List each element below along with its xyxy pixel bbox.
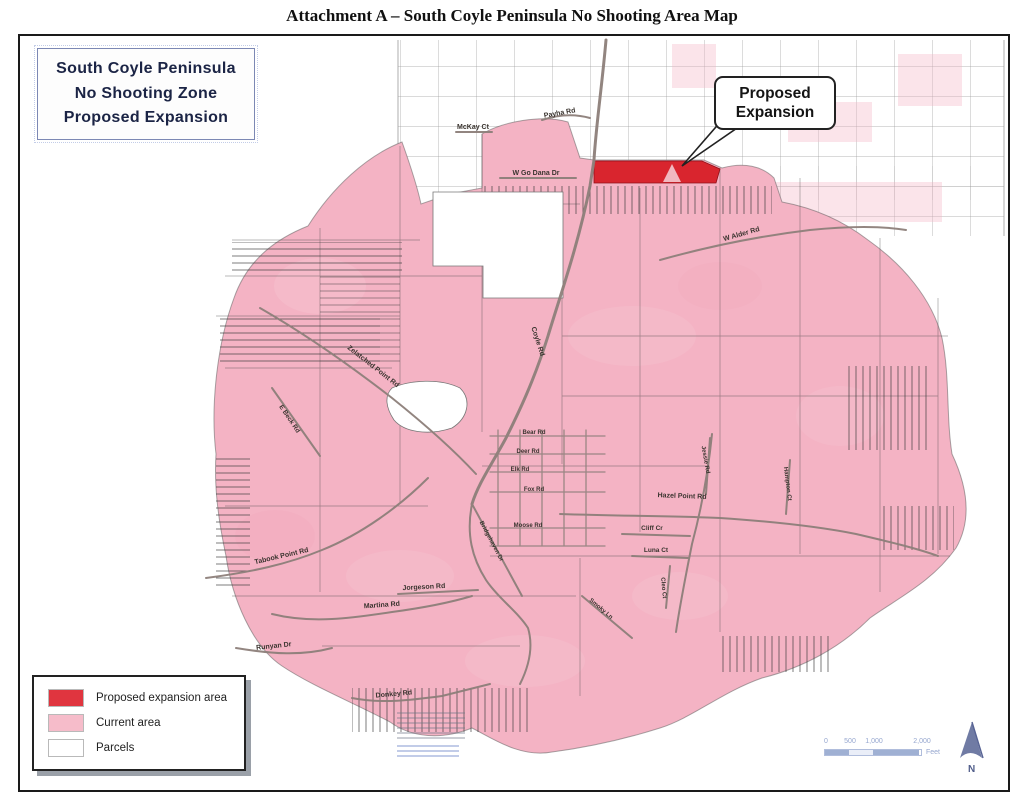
- road-label: Cliff Cr: [641, 525, 663, 532]
- road-label: W Go Dana Dr: [512, 170, 559, 177]
- callout-line: Expansion: [736, 103, 814, 122]
- north-label: N: [968, 764, 975, 775]
- legend-item-parcels: Parcels: [48, 739, 244, 757]
- scale-ticks: 0 500 1,000 2,000: [824, 738, 984, 748]
- scale-segment: [849, 750, 873, 755]
- scale-segment: [873, 750, 919, 755]
- legend-item-proposed-expansion: Proposed expansion area: [48, 689, 244, 707]
- road-label: Bear Rd: [522, 430, 545, 436]
- callout-line: Proposed: [739, 84, 810, 103]
- inset-title-line: Proposed Expansion: [64, 106, 229, 131]
- map-frame: McKay CtPayha RdW Go Dana DrW Alder RdCo…: [18, 34, 1010, 792]
- scale-bar-segments: [824, 749, 922, 756]
- page-title: Attachment A – South Coyle Peninsula No …: [0, 6, 1024, 26]
- road-label: Moose Rd: [514, 523, 543, 529]
- inset-title-line: No Shooting Zone: [75, 82, 218, 107]
- road-label: McKay Ct: [457, 124, 490, 131]
- inset-title-line: South Coyle Peninsula: [56, 57, 236, 82]
- expansion-area-shape: [594, 161, 720, 183]
- legend-label: Parcels: [96, 742, 134, 754]
- map-inset-title: South Coyle Peninsula No Shooting Zone P…: [37, 48, 255, 140]
- current-area-swatch: [48, 714, 84, 732]
- scale-tick: 1,000: [865, 738, 883, 745]
- legend-label: Proposed expansion area: [96, 692, 227, 704]
- parcels-swatch: [48, 739, 84, 757]
- road-label: Deer Rd: [516, 449, 539, 455]
- road-label: Luna Ct: [644, 547, 669, 554]
- scale-bar: 0 500 1,000 2,000 Feet: [824, 738, 984, 764]
- expansion-swatch: [48, 689, 84, 707]
- road-label: Elk Rd: [511, 467, 530, 473]
- scale-tick: 0: [824, 738, 828, 745]
- scale-unit: Feet: [926, 749, 940, 756]
- proposed-expansion-callout: Proposed Expansion: [714, 76, 836, 130]
- scale-tick: 500: [844, 738, 856, 745]
- legend: Proposed expansion area Current area Par…: [32, 675, 246, 771]
- map-credits-fineprint: [397, 712, 469, 764]
- scale-tick: 2,000: [913, 738, 931, 745]
- road-label: Fox Rd: [524, 487, 545, 493]
- legend-label: Current area: [96, 717, 161, 729]
- scale-segment: [825, 750, 849, 755]
- legend-item-current-area: Current area: [48, 714, 244, 732]
- fineprint-lines-blue: [397, 745, 459, 757]
- fineprint-lines: [397, 712, 465, 742]
- document-page: Attachment A – South Coyle Peninsula No …: [0, 0, 1024, 801]
